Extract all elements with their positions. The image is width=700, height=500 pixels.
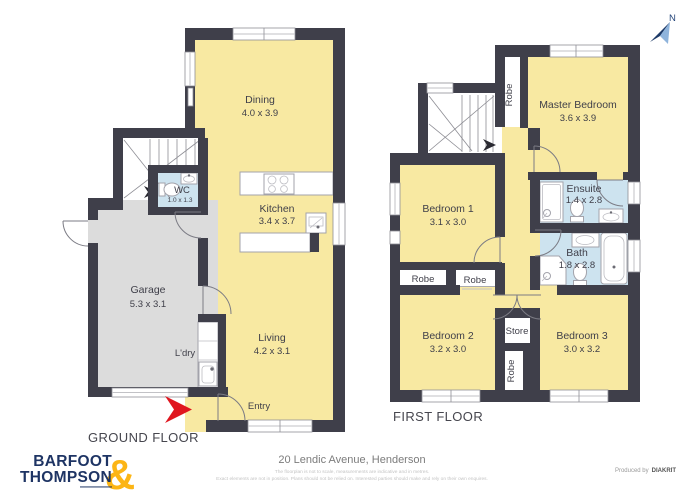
robe-master-label: Robe [504, 84, 515, 107]
bedroom2-label: Bedroom 2 [422, 330, 474, 342]
barfoot-thompson-logo: & BARFOOT THOMPSON [20, 451, 135, 498]
living-dims: 4.2 x 3.1 [254, 346, 290, 357]
bedroom1-dims: 3.1 x 3.0 [430, 217, 466, 228]
disclaimer-line2: Exact elements are not in position. Plan… [216, 476, 488, 482]
logo-line2: THOMPSON [20, 469, 112, 486]
garage-label: Garage [130, 284, 165, 296]
dining-label: Dining [245, 94, 275, 106]
laundry-label: L'dry [175, 348, 196, 359]
entry-label: Entry [248, 401, 270, 412]
producer-credit: Produced byDIAKRIT [615, 468, 676, 474]
logo-line1: BARFOOT [33, 453, 112, 470]
wc-dims: 1.0 x 1.3 [168, 197, 193, 204]
robe2-label: Robe [464, 275, 487, 286]
garage-side-door-arc [63, 221, 88, 246]
property-address: 20 Lendic Avenue, Henderson [278, 454, 425, 466]
kitchen-counter-top [240, 172, 333, 195]
compass-north-label: N [669, 13, 676, 24]
living-label: Living [258, 332, 286, 344]
bath-label: Bath [566, 247, 588, 259]
disclaimer-line1: The floorplan is not to scale, measureme… [275, 469, 429, 475]
ensuite-label: Ensuite [566, 183, 601, 195]
wc-label: WC [174, 185, 190, 196]
master-bedroom-dims: 3.6 x 3.9 [560, 113, 596, 124]
ground-floor-title: GROUND FLOOR [88, 430, 199, 445]
robe3-label: Robe [506, 360, 517, 383]
bedroom1-label: Bedroom 1 [422, 203, 474, 215]
kitchen-sink-icon [306, 213, 326, 233]
first-floor-title: FIRST FLOOR [393, 409, 483, 424]
logo-tagline-mark [80, 486, 112, 488]
north-compass-icon: N [650, 13, 676, 44]
ground-floor-plan: Dining 4.0 x 3.9 Kitchen 3.4 x 3.7 WC 1.… [63, 28, 345, 445]
dining-dims: 4.0 x 3.9 [242, 108, 278, 119]
bedroom2-dims: 3.2 x 3.0 [430, 344, 466, 355]
master-bedroom-label: Master Bedroom [539, 99, 617, 111]
kitchen-counter-bottom [240, 233, 310, 252]
bathtub-icon [601, 233, 627, 284]
robe1-label: Robe [412, 274, 435, 285]
wc-sink-icon [181, 173, 197, 184]
laundry-tub-icon [199, 362, 217, 386]
store-label: Store [506, 326, 529, 337]
ensuite-dims: 1.4 x 2.8 [566, 195, 602, 206]
floorplan-canvas: Dining 4.0 x 3.9 Kitchen 3.4 x 3.7 WC 1.… [0, 0, 700, 500]
bath-dims: 1.8 x 2.8 [559, 260, 595, 271]
laundry-closet [198, 322, 218, 388]
footer: 20 Lendic Avenue, Henderson The floorpla… [216, 454, 676, 482]
ensuite-shower-icon [540, 182, 563, 222]
first-floor-plan: Master Bedroom 3.6 x 3.9 Robe Bedroom 1 … [390, 45, 640, 424]
kitchen-dims: 3.4 x 3.7 [259, 216, 295, 227]
stove-icon [264, 174, 294, 194]
bedroom3-dims: 3.0 x 3.2 [564, 344, 600, 355]
ensuite-vanity-icon [599, 209, 623, 223]
bedroom3-label: Bedroom 3 [556, 330, 608, 342]
garage-dims: 5.3 x 3.1 [130, 299, 166, 310]
kitchen-label: Kitchen [259, 203, 294, 215]
